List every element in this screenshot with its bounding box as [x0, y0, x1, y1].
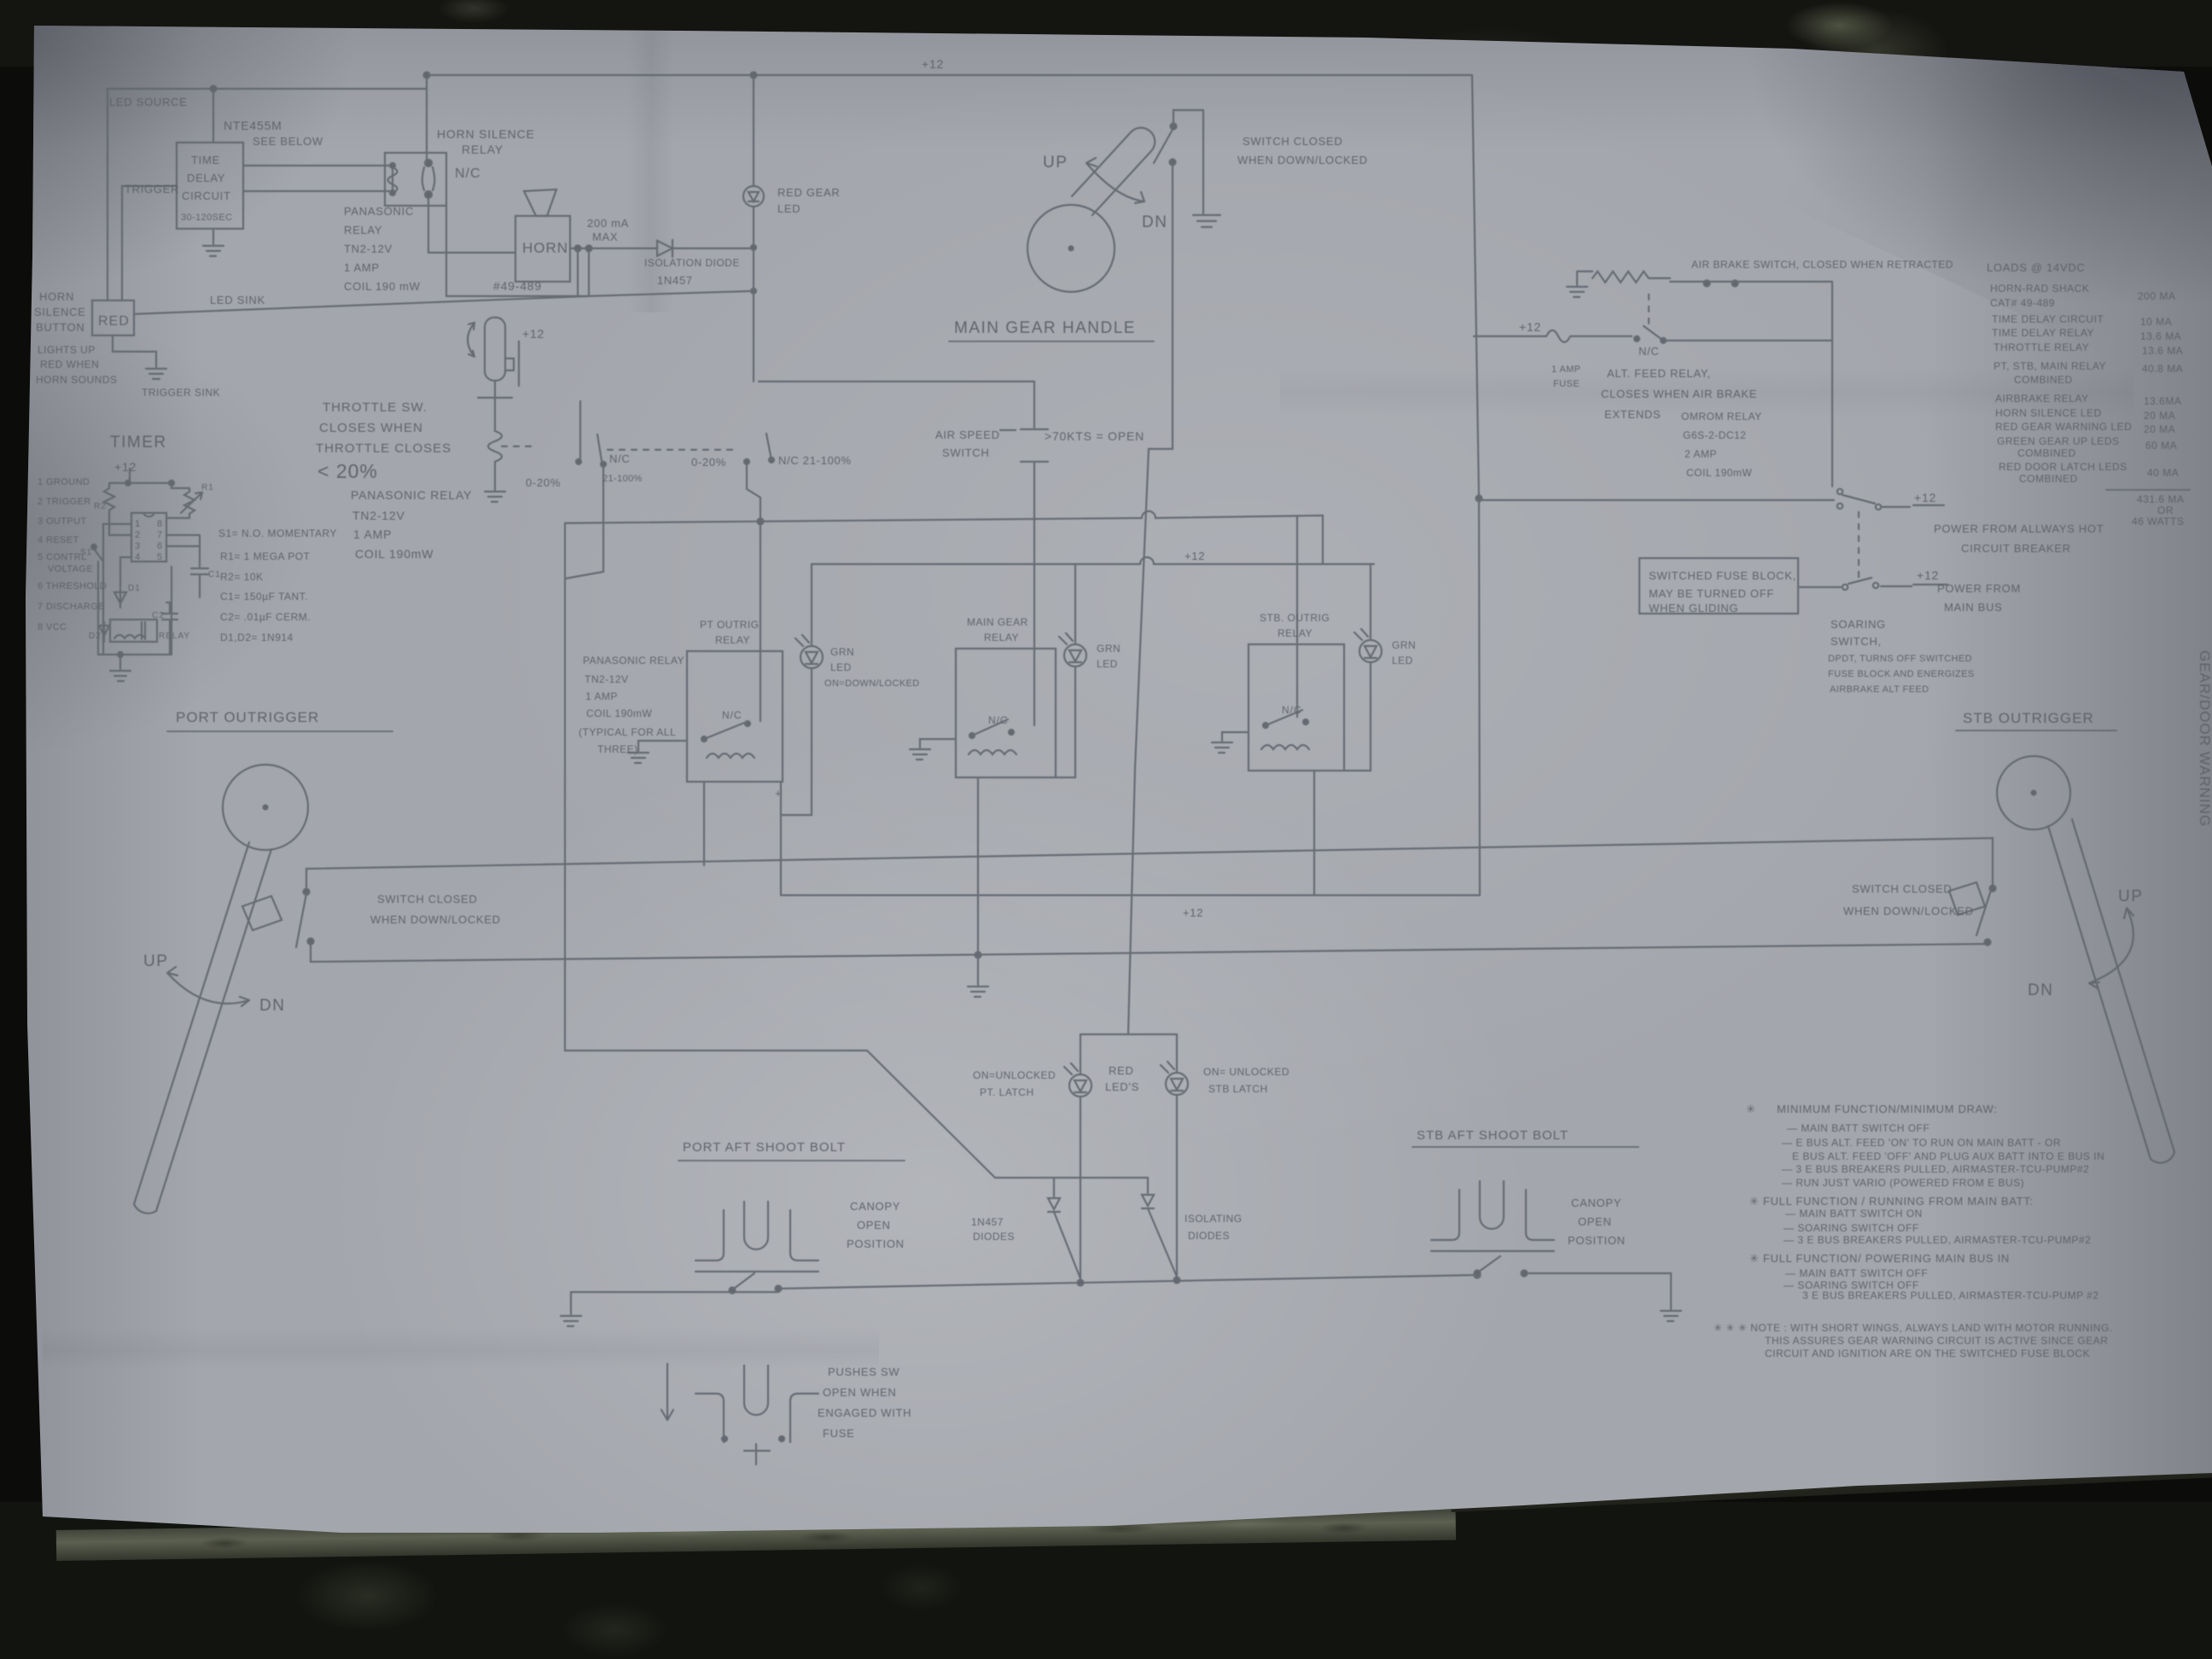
svg-text:CLOSES WHEN: CLOSES WHEN — [319, 421, 423, 435]
svg-text:S1: S1 — [80, 548, 92, 557]
svg-text:THROTTLE CLOSES: THROTTLE CLOSES — [316, 441, 451, 456]
svg-text:30-120SEC: 30-120SEC — [181, 212, 232, 223]
svg-text:+12: +12 — [1185, 550, 1205, 562]
svg-text:N/C: N/C — [455, 166, 481, 181]
svg-text:60 MA: 60 MA — [2145, 439, 2177, 451]
svg-text:UP: UP — [1043, 154, 1068, 172]
svg-text:MAIN BUS: MAIN BUS — [1944, 601, 2002, 614]
svg-text:WHEN DOWN/LOCKED: WHEN DOWN/LOCKED — [1843, 905, 1974, 917]
svg-text:1 AMP: 1 AMP — [1551, 364, 1580, 375]
svg-text:PT, STB, MAIN RELAY: PT, STB, MAIN RELAY — [1994, 360, 2106, 372]
svg-text:5: 5 — [157, 552, 163, 562]
svg-text:13.6MA: 13.6MA — [2144, 395, 2181, 407]
svg-text:— MAIN BATT SWITCH OFF: — MAIN BATT SWITCH OFF — [1787, 1122, 1930, 1134]
svg-text:10 MA: 10 MA — [2140, 316, 2172, 328]
svg-text:LIGHTS UP: LIGHTS UP — [38, 344, 96, 356]
svg-text:DN: DN — [1142, 213, 1167, 231]
svg-text:CIRCUIT BREAKER: CIRCUIT BREAKER — [1961, 542, 2071, 555]
svg-text:3: 3 — [135, 541, 141, 551]
svg-text:SWITCH: SWITCH — [942, 446, 989, 459]
svg-text:CANOPY: CANOPY — [1571, 1196, 1621, 1209]
svg-text:DIODES: DIODES — [973, 1231, 1015, 1243]
svg-text:DPDT, TURNS OFF SWITCHED: DPDT, TURNS OFF SWITCHED — [1828, 654, 1972, 664]
svg-text:DN: DN — [259, 997, 285, 1015]
svg-text:EXTENDS: EXTENDS — [1604, 408, 1661, 421]
svg-text:NTE455M: NTE455M — [224, 119, 282, 132]
svg-text:TIME DELAY CIRCUIT: TIME DELAY CIRCUIT — [1992, 313, 2104, 325]
svg-text:S1= N.O. MOMENTARY: S1= N.O. MOMENTARY — [218, 527, 337, 539]
svg-text:N/C 21-100%: N/C 21-100% — [778, 454, 852, 467]
svg-text:40 MA: 40 MA — [2147, 467, 2179, 479]
svg-text:20 MA: 20 MA — [2144, 410, 2175, 422]
svg-text:CIRCUIT AND IGNITION ARE ON TH: CIRCUIT AND IGNITION ARE ON THE SWITCHED… — [1765, 1348, 2090, 1359]
svg-text:COIL 190mW: COIL 190mW — [586, 707, 652, 719]
svg-text:UP: UP — [143, 952, 168, 970]
svg-text:STB OUTRIGGER: STB OUTRIGGER — [1963, 710, 2094, 726]
svg-text:2 AMP: 2 AMP — [1685, 448, 1717, 460]
svg-text:4 RESET: 4 RESET — [38, 535, 79, 545]
svg-text:N/C: N/C — [1639, 345, 1660, 358]
svg-text:THIS ASSURES GEAR WARNING CIRC: THIS ASSURES GEAR WARNING CIRCUIT IS ACT… — [1765, 1335, 2108, 1347]
svg-text:C1= 150µF TANT.: C1= 150µF TANT. — [220, 591, 308, 602]
svg-text:0-20%: 0-20% — [526, 476, 561, 489]
svg-text:SEE BELOW: SEE BELOW — [253, 135, 323, 148]
svg-text:ISOLATING: ISOLATING — [1185, 1213, 1243, 1225]
svg-text:PT OUTRIG: PT OUTRIG — [700, 619, 760, 631]
svg-text:COMBINED: COMBINED — [2019, 473, 2078, 485]
svg-text:PANASONIC: PANASONIC — [344, 205, 414, 218]
svg-text:5 CONTRL: 5 CONTRL — [38, 552, 87, 562]
svg-text:STB LATCH: STB LATCH — [1208, 1083, 1268, 1095]
svg-text:LED: LED — [1097, 658, 1118, 670]
svg-text:ON=UNLOCKED: ON=UNLOCKED — [973, 1069, 1056, 1081]
svg-text:POSITION: POSITION — [847, 1237, 905, 1250]
svg-text:STB AFT SHOOT BOLT: STB AFT SHOOT BOLT — [1417, 1128, 1569, 1143]
svg-text:POSITION: POSITION — [1568, 1234, 1626, 1247]
svg-text:R1= 1 MEGA POT: R1= 1 MEGA POT — [220, 550, 311, 562]
svg-text:OR: OR — [2157, 504, 2174, 516]
svg-text:✳ ✳ ✳ NOTE : WITH SHORT WINGS,: ✳ ✳ ✳ NOTE : WITH SHORT WINGS, ALWAYS LA… — [1714, 1322, 2113, 1334]
svg-text:1 AMP: 1 AMP — [353, 527, 392, 541]
svg-text:THREE): THREE) — [597, 743, 638, 755]
svg-text:VOLTAGE: VOLTAGE — [48, 564, 93, 574]
svg-text:COMBINED: COMBINED — [2017, 447, 2076, 459]
svg-text:ALT. FEED RELAY,: ALT. FEED RELAY, — [1607, 367, 1711, 380]
svg-text:SOARING: SOARING — [1831, 618, 1886, 631]
svg-text:1 AMP: 1 AMP — [585, 690, 618, 702]
svg-text:CLOSES WHEN AIR BRAKE: CLOSES WHEN AIR BRAKE — [1601, 387, 1757, 400]
svg-text:GRN: GRN — [1392, 639, 1416, 651]
svg-text:TN2-12V: TN2-12V — [585, 673, 629, 685]
svg-text:< 20%: < 20% — [317, 460, 378, 482]
svg-text:E BUS ALT. FEED 'OFF' AND PLUG: E BUS ALT. FEED 'OFF' AND PLUG AUX BATT … — [1792, 1150, 2104, 1162]
svg-text:SWITCH,: SWITCH, — [1831, 635, 1882, 648]
svg-text:N/C: N/C — [722, 709, 742, 721]
svg-text:RELAY: RELAY — [344, 224, 382, 236]
svg-text:2 TRIGGER: 2 TRIGGER — [38, 497, 91, 507]
svg-text:MAIN GEAR: MAIN GEAR — [967, 616, 1028, 628]
svg-text:+12: +12 — [1914, 491, 1936, 504]
svg-text:OPEN: OPEN — [1578, 1215, 1612, 1228]
svg-text:PORT OUTRIGGER: PORT OUTRIGGER — [176, 709, 319, 725]
svg-text:46 WATTS: 46 WATTS — [2132, 515, 2184, 527]
svg-text:8 VCC: 8 VCC — [38, 622, 67, 632]
svg-text:SILENCE: SILENCE — [34, 306, 86, 318]
svg-text:AIR BRAKE SWITCH, CLOSED WHEN: AIR BRAKE SWITCH, CLOSED WHEN RETRACTED — [1691, 259, 1953, 271]
svg-text:LED'S: LED'S — [1105, 1080, 1139, 1093]
svg-text:+12: +12 — [1519, 320, 1541, 334]
svg-text:— 3 E BUS BREAKERS PULLED, AIR: — 3 E BUS BREAKERS PULLED, AIRMASTER-TCU… — [1782, 1163, 2089, 1175]
svg-text:21-100%: 21-100% — [602, 474, 643, 484]
svg-text:LED: LED — [830, 661, 852, 673]
svg-text:+12: +12 — [1917, 568, 1939, 582]
svg-text:DN: DN — [2028, 981, 2053, 999]
svg-text:1: 1 — [135, 519, 141, 529]
svg-text:R2: R2 — [94, 502, 107, 511]
svg-text:N/C: N/C — [1282, 704, 1302, 716]
svg-text:GRN: GRN — [1097, 643, 1121, 655]
svg-text:— RUN JUST VARIO (POWERED FROM: — RUN JUST VARIO (POWERED FROM E BUS) — [1782, 1177, 2024, 1189]
svg-text:D1,D2= 1N914: D1,D2= 1N914 — [220, 632, 294, 643]
svg-text:431.6 MA: 431.6 MA — [2137, 493, 2184, 505]
svg-text:7 DISCHARGE: 7 DISCHARGE — [38, 602, 105, 612]
svg-text:GRN: GRN — [830, 646, 854, 658]
svg-text:13.6 MA: 13.6 MA — [2142, 345, 2183, 357]
svg-text:SWITCH CLOSED: SWITCH CLOSED — [1243, 135, 1342, 148]
svg-text:6: 6 — [157, 541, 163, 551]
svg-text:LED SINK: LED SINK — [210, 294, 265, 306]
svg-text:POWER FROM ALLWAYS HOT: POWER FROM ALLWAYS HOT — [1934, 522, 2104, 535]
svg-text:+12: +12 — [1183, 906, 1203, 919]
svg-text:CAT# 49-489: CAT# 49-489 — [1990, 297, 2055, 309]
svg-text:ON= UNLOCKED: ON= UNLOCKED — [1203, 1066, 1289, 1078]
svg-text:PANASONIC RELAY: PANASONIC RELAY — [351, 488, 472, 502]
svg-text:FUSE BLOCK AND ENERGIZES: FUSE BLOCK AND ENERGIZES — [1828, 669, 1975, 679]
svg-text:RED GEAR: RED GEAR — [777, 186, 841, 199]
svg-text:AIRBRAKE ALT FEED: AIRBRAKE ALT FEED — [1830, 684, 1929, 695]
svg-text:HORN: HORN — [522, 240, 568, 256]
svg-text:+12: +12 — [922, 57, 944, 71]
svg-text:8: 8 — [157, 519, 163, 529]
svg-text:PUSHES SW: PUSHES SW — [828, 1365, 899, 1378]
svg-text:TIME DELAY RELAY: TIME DELAY RELAY — [1992, 327, 2094, 339]
svg-text:MAX: MAX — [592, 230, 618, 243]
svg-text:HORN SILENCE: HORN SILENCE — [437, 127, 535, 141]
svg-text:C1: C1 — [208, 570, 221, 579]
svg-text:TN2-12V: TN2-12V — [344, 242, 393, 255]
svg-text:1 AMP: 1 AMP — [344, 261, 380, 274]
svg-text:R2= 10K: R2= 10K — [220, 571, 264, 583]
svg-text:COIL 190mW: COIL 190mW — [355, 547, 434, 561]
svg-text:ON=DOWN/LOCKED: ON=DOWN/LOCKED — [824, 678, 920, 689]
svg-text:BUTTON: BUTTON — [36, 321, 84, 334]
svg-text:TRIGGER SINK: TRIGGER SINK — [142, 387, 220, 399]
svg-text:— MAIN BATT SWITCH OFF: — MAIN BATT SWITCH OFF — [1785, 1267, 1928, 1279]
svg-text:3 E BUS BREAKERS PULLED, AIRMA: 3 E BUS BREAKERS PULLED, AIRMASTER-TCU-P… — [1802, 1289, 2099, 1301]
svg-text:N/C: N/C — [609, 452, 631, 465]
svg-text:✳: ✳ — [1746, 1103, 1756, 1115]
svg-text:AIR SPEED: AIR SPEED — [935, 428, 1000, 441]
svg-text:FUSE: FUSE — [823, 1427, 854, 1440]
svg-text:+: + — [775, 787, 782, 800]
svg-text:GEAR/DOOR WARNING: GEAR/DOOR WARNING — [2197, 650, 2212, 827]
svg-text:1N457: 1N457 — [657, 274, 693, 287]
svg-text:200 MA: 200 MA — [2138, 290, 2175, 302]
svg-text:MAY BE TURNED OFF: MAY BE TURNED OFF — [1649, 587, 1774, 600]
svg-text:HORN SOUNDS: HORN SOUNDS — [36, 374, 118, 386]
svg-text:— E BUS ALT. FEED 'ON' TO RUN: — E BUS ALT. FEED 'ON' TO RUN ON MAIN BA… — [1782, 1137, 2061, 1149]
svg-text:TRIGGER: TRIGGER — [125, 183, 179, 195]
svg-text:SWITCH CLOSED: SWITCH CLOSED — [1852, 882, 1952, 895]
svg-text:PT. LATCH: PT. LATCH — [980, 1086, 1034, 1098]
svg-text:TIMER: TIMER — [110, 434, 167, 451]
svg-text:RELAY: RELAY — [984, 632, 1019, 643]
svg-text:SWITCHED FUSE BLOCK,: SWITCHED FUSE BLOCK, — [1649, 569, 1796, 582]
svg-text:RED: RED — [1109, 1064, 1134, 1077]
svg-text:OMROM RELAY: OMROM RELAY — [1681, 410, 1762, 422]
svg-text:LOADS @ 14VDC: LOADS @ 14VDC — [1987, 261, 2086, 274]
svg-text:AIRBRAKE RELAY: AIRBRAKE RELAY — [1995, 393, 2088, 405]
svg-text:+12: +12 — [114, 460, 137, 474]
svg-text:+12: +12 — [522, 327, 544, 341]
svg-text:LED: LED — [777, 202, 800, 215]
svg-text:C2: C2 — [152, 611, 165, 620]
svg-text:ISOLATION DIODE: ISOLATION DIODE — [644, 257, 740, 269]
svg-text:OPEN WHEN: OPEN WHEN — [823, 1386, 896, 1399]
svg-text:N/C: N/C — [988, 714, 1009, 726]
svg-text:ENGAGED WITH: ENGAGED WITH — [818, 1406, 911, 1419]
svg-text:CIRCUIT: CIRCUIT — [182, 189, 231, 202]
svg-text:13.6 MA: 13.6 MA — [2140, 330, 2181, 342]
svg-text:FUSE: FUSE — [1553, 379, 1580, 389]
svg-text:POWER FROM: POWER FROM — [1937, 582, 2021, 595]
svg-text:>70KTS = OPEN: >70KTS = OPEN — [1045, 429, 1144, 443]
svg-text:HORN SILENCE LED: HORN SILENCE LED — [1995, 407, 2102, 419]
svg-text:OPEN: OPEN — [857, 1219, 891, 1231]
svg-text:HORN: HORN — [39, 290, 74, 303]
svg-text:LED: LED — [1392, 655, 1413, 667]
svg-text:PANASONIC RELAY: PANASONIC RELAY — [583, 655, 684, 667]
svg-text:DELAY: DELAY — [187, 172, 225, 184]
svg-text:— MAIN BATT SWITCH ON: — MAIN BATT SWITCH ON — [1785, 1208, 1923, 1220]
svg-text:1 GROUND: 1 GROUND — [38, 477, 90, 487]
svg-text:COIL 190 mW: COIL 190 mW — [344, 280, 421, 293]
svg-text:HORN-RAD SHACK: HORN-RAD SHACK — [1990, 282, 2089, 294]
svg-text:✳ FULL FUNCTION / RUNNING FROM: ✳ FULL FUNCTION / RUNNING FROM MAIN BATT… — [1749, 1195, 2034, 1208]
svg-text:C2= .01µF CERM.: C2= .01µF CERM. — [220, 611, 311, 623]
svg-text:— SOARING SWITCH OFF: — SOARING SWITCH OFF — [1784, 1222, 1919, 1234]
svg-text:WHEN DOWN/LOCKED: WHEN DOWN/LOCKED — [1237, 154, 1368, 166]
svg-text:UP: UP — [2118, 888, 2143, 905]
svg-text:0-20%: 0-20% — [691, 456, 726, 469]
svg-text:RELAY: RELAY — [462, 143, 504, 156]
svg-text:TIME: TIME — [191, 154, 220, 166]
svg-text:✳ FULL FUNCTION/ POWERING MAIN: ✳ FULL FUNCTION/ POWERING MAIN BUS IN — [1749, 1252, 2010, 1265]
svg-text:G6S-2-DC12: G6S-2-DC12 — [1683, 429, 1746, 441]
svg-text:PORT AFT SHOOT BOLT: PORT AFT SHOOT BOLT — [683, 1140, 846, 1155]
svg-text:— 3 E BUS BREAKERS PULLED, AIR: — 3 E BUS BREAKERS PULLED, AIRMASTER-TCU… — [1784, 1234, 2091, 1246]
svg-text:20 MA: 20 MA — [2144, 423, 2175, 435]
svg-text:RED GEAR WARNING LED: RED GEAR WARNING LED — [1995, 421, 2132, 433]
svg-text:4: 4 — [135, 552, 141, 562]
svg-text:RELAY: RELAY — [159, 632, 190, 641]
svg-text:WHEN GLIDING: WHEN GLIDING — [1649, 602, 1738, 614]
svg-text:MINIMUM FUNCTION/MINIMUM DRAW:: MINIMUM FUNCTION/MINIMUM DRAW: — [1777, 1103, 1998, 1115]
svg-text:RELAY: RELAY — [715, 634, 750, 646]
svg-text:STB. OUTRIG: STB. OUTRIG — [1260, 612, 1330, 624]
svg-text:RED DOOR LATCH LEDS: RED DOOR LATCH LEDS — [1999, 461, 2128, 473]
svg-text:GREEN GEAR UP LEDS: GREEN GEAR UP LEDS — [1997, 435, 2119, 447]
svg-text:7: 7 — [157, 530, 163, 540]
svg-text:THROTTLE SW.: THROTTLE SW. — [323, 400, 428, 415]
svg-text:2: 2 — [135, 530, 141, 540]
svg-text:#49-489: #49-489 — [493, 279, 542, 293]
svg-text:D2: D2 — [89, 632, 102, 641]
svg-text:3 OUTPUT: 3 OUTPUT — [38, 516, 87, 527]
svg-text:200 mA: 200 mA — [587, 217, 629, 230]
svg-text:COIL 190mW: COIL 190mW — [1686, 467, 1752, 479]
svg-text:CANOPY: CANOPY — [850, 1200, 900, 1213]
svg-text:MAIN GEAR HANDLE: MAIN GEAR HANDLE — [954, 319, 1136, 337]
svg-text:COMBINED: COMBINED — [2014, 374, 2073, 386]
svg-text:D1: D1 — [128, 584, 141, 593]
svg-text:R1: R1 — [201, 483, 214, 492]
svg-text:RED: RED — [98, 314, 130, 329]
svg-text:DIODES: DIODES — [1188, 1230, 1230, 1242]
svg-text:40.8 MA: 40.8 MA — [2142, 363, 2183, 375]
svg-text:1N457: 1N457 — [971, 1216, 1004, 1228]
svg-text:SWITCH CLOSED: SWITCH CLOSED — [377, 893, 477, 905]
svg-text:THROTTLE RELAY: THROTTLE RELAY — [1994, 341, 2089, 353]
svg-text:TN2-12V: TN2-12V — [352, 509, 405, 522]
svg-text:RED WHEN: RED WHEN — [40, 358, 99, 370]
svg-text:RELAY: RELAY — [1278, 627, 1313, 639]
svg-text:WHEN DOWN/LOCKED: WHEN DOWN/LOCKED — [370, 913, 501, 926]
svg-text:(TYPICAL FOR ALL: (TYPICAL FOR ALL — [579, 726, 676, 738]
svg-text:6 THRESHOLD: 6 THRESHOLD — [38, 581, 107, 591]
svg-text:LED SOURCE: LED SOURCE — [109, 96, 188, 108]
